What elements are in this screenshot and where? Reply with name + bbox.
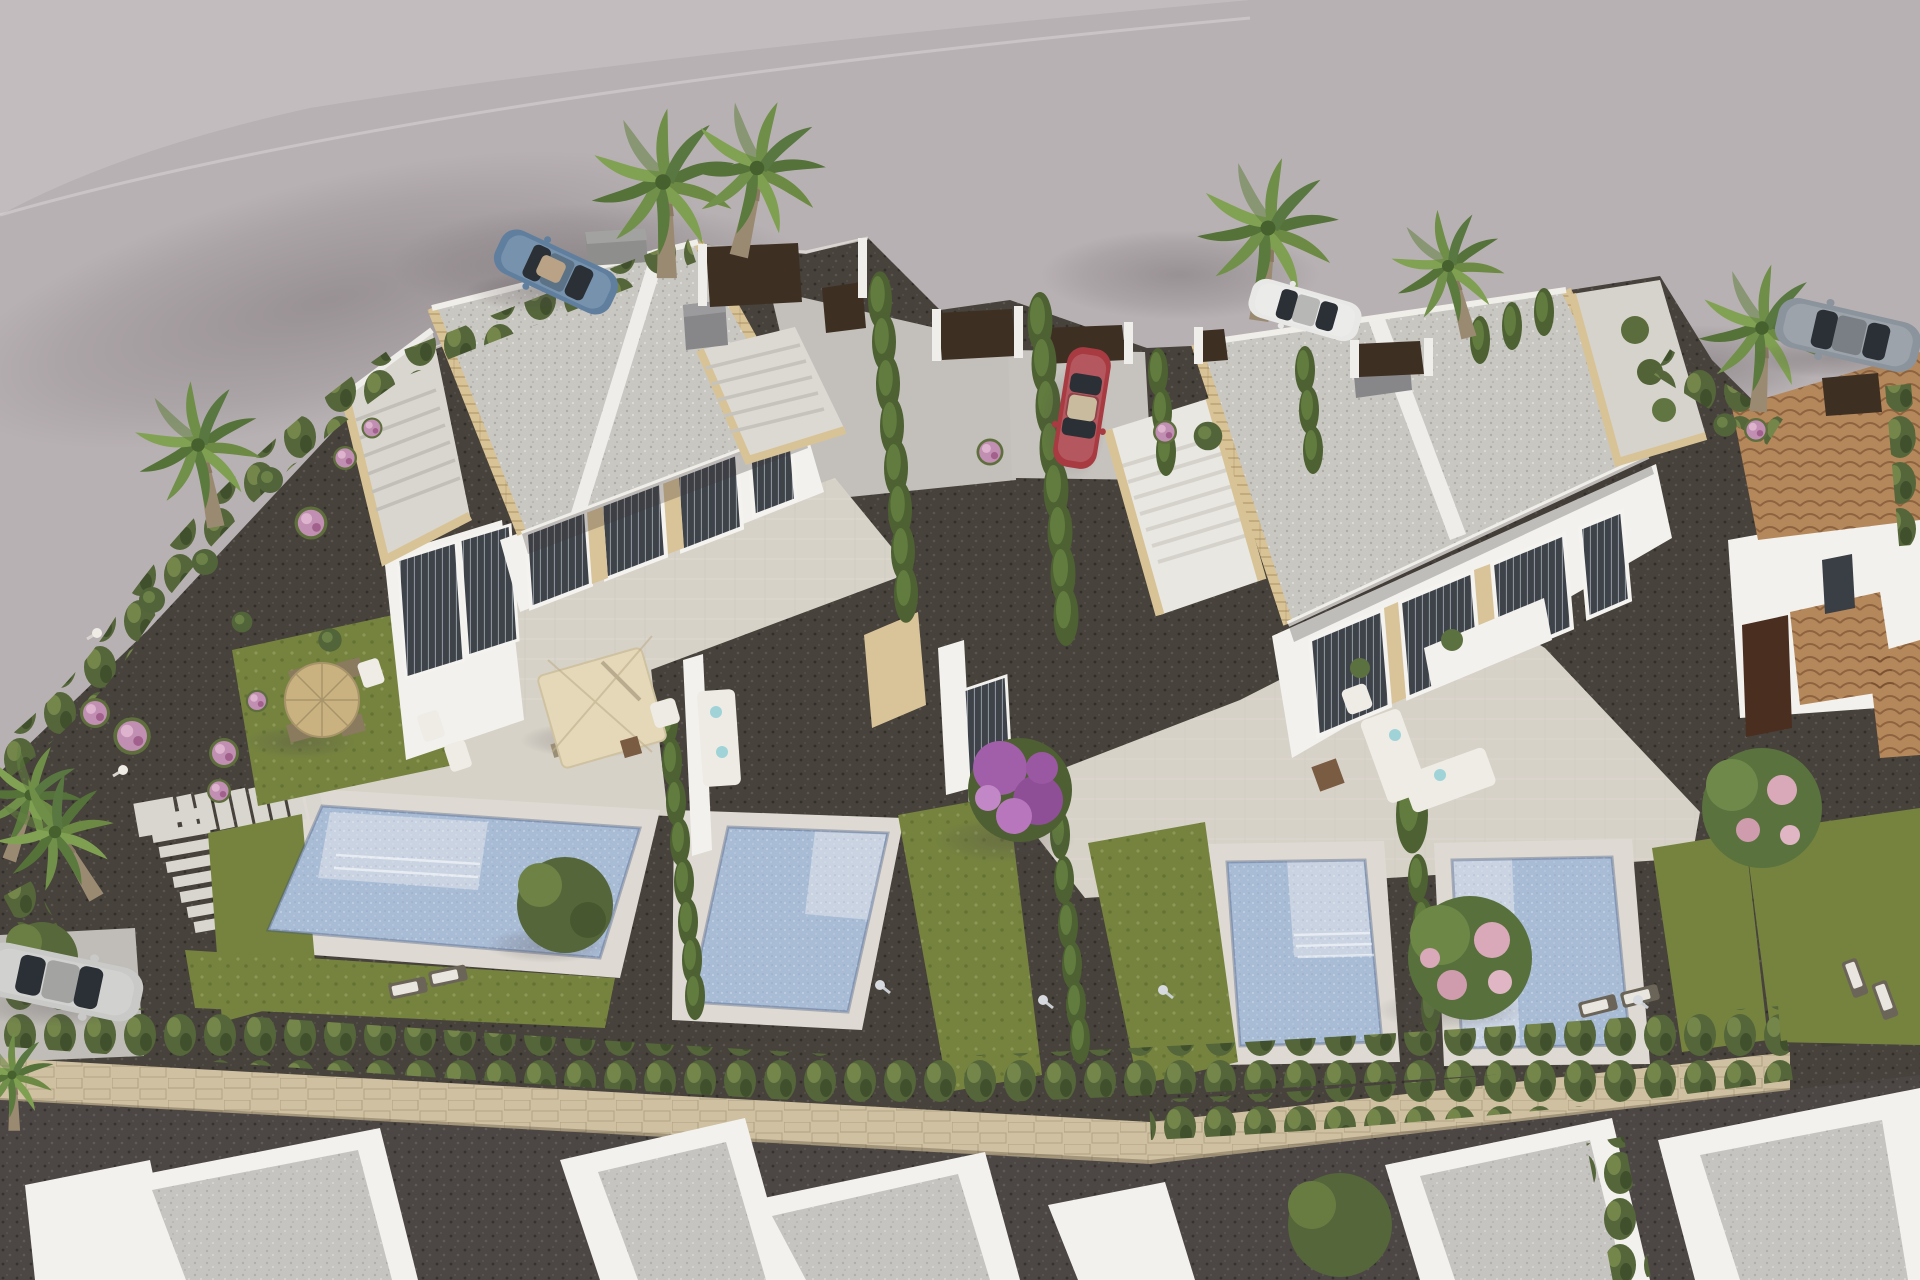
potted-plant (1350, 658, 1370, 678)
tree-bottom-road (1288, 1173, 1392, 1277)
red-car-glass-roof (1066, 394, 1097, 422)
potted-plant-2 (1441, 629, 1463, 651)
gate-1 (706, 243, 802, 307)
gate-7 (1822, 373, 1882, 416)
aerial-render (0, 0, 1920, 1280)
gate-3 (938, 309, 1016, 360)
gate-6 (1355, 341, 1424, 377)
villa-left-window-a (398, 542, 464, 678)
neighbor-door (1742, 615, 1792, 737)
villa-right-window-4 (1580, 511, 1630, 618)
hedge-right-edge (1898, 385, 1912, 545)
pink-blossom-tree-2 (1702, 748, 1822, 868)
render-canvas (0, 0, 1920, 1280)
neighbor-window (1822, 554, 1855, 614)
hedge-bottom-vertical (1605, 1140, 1632, 1280)
